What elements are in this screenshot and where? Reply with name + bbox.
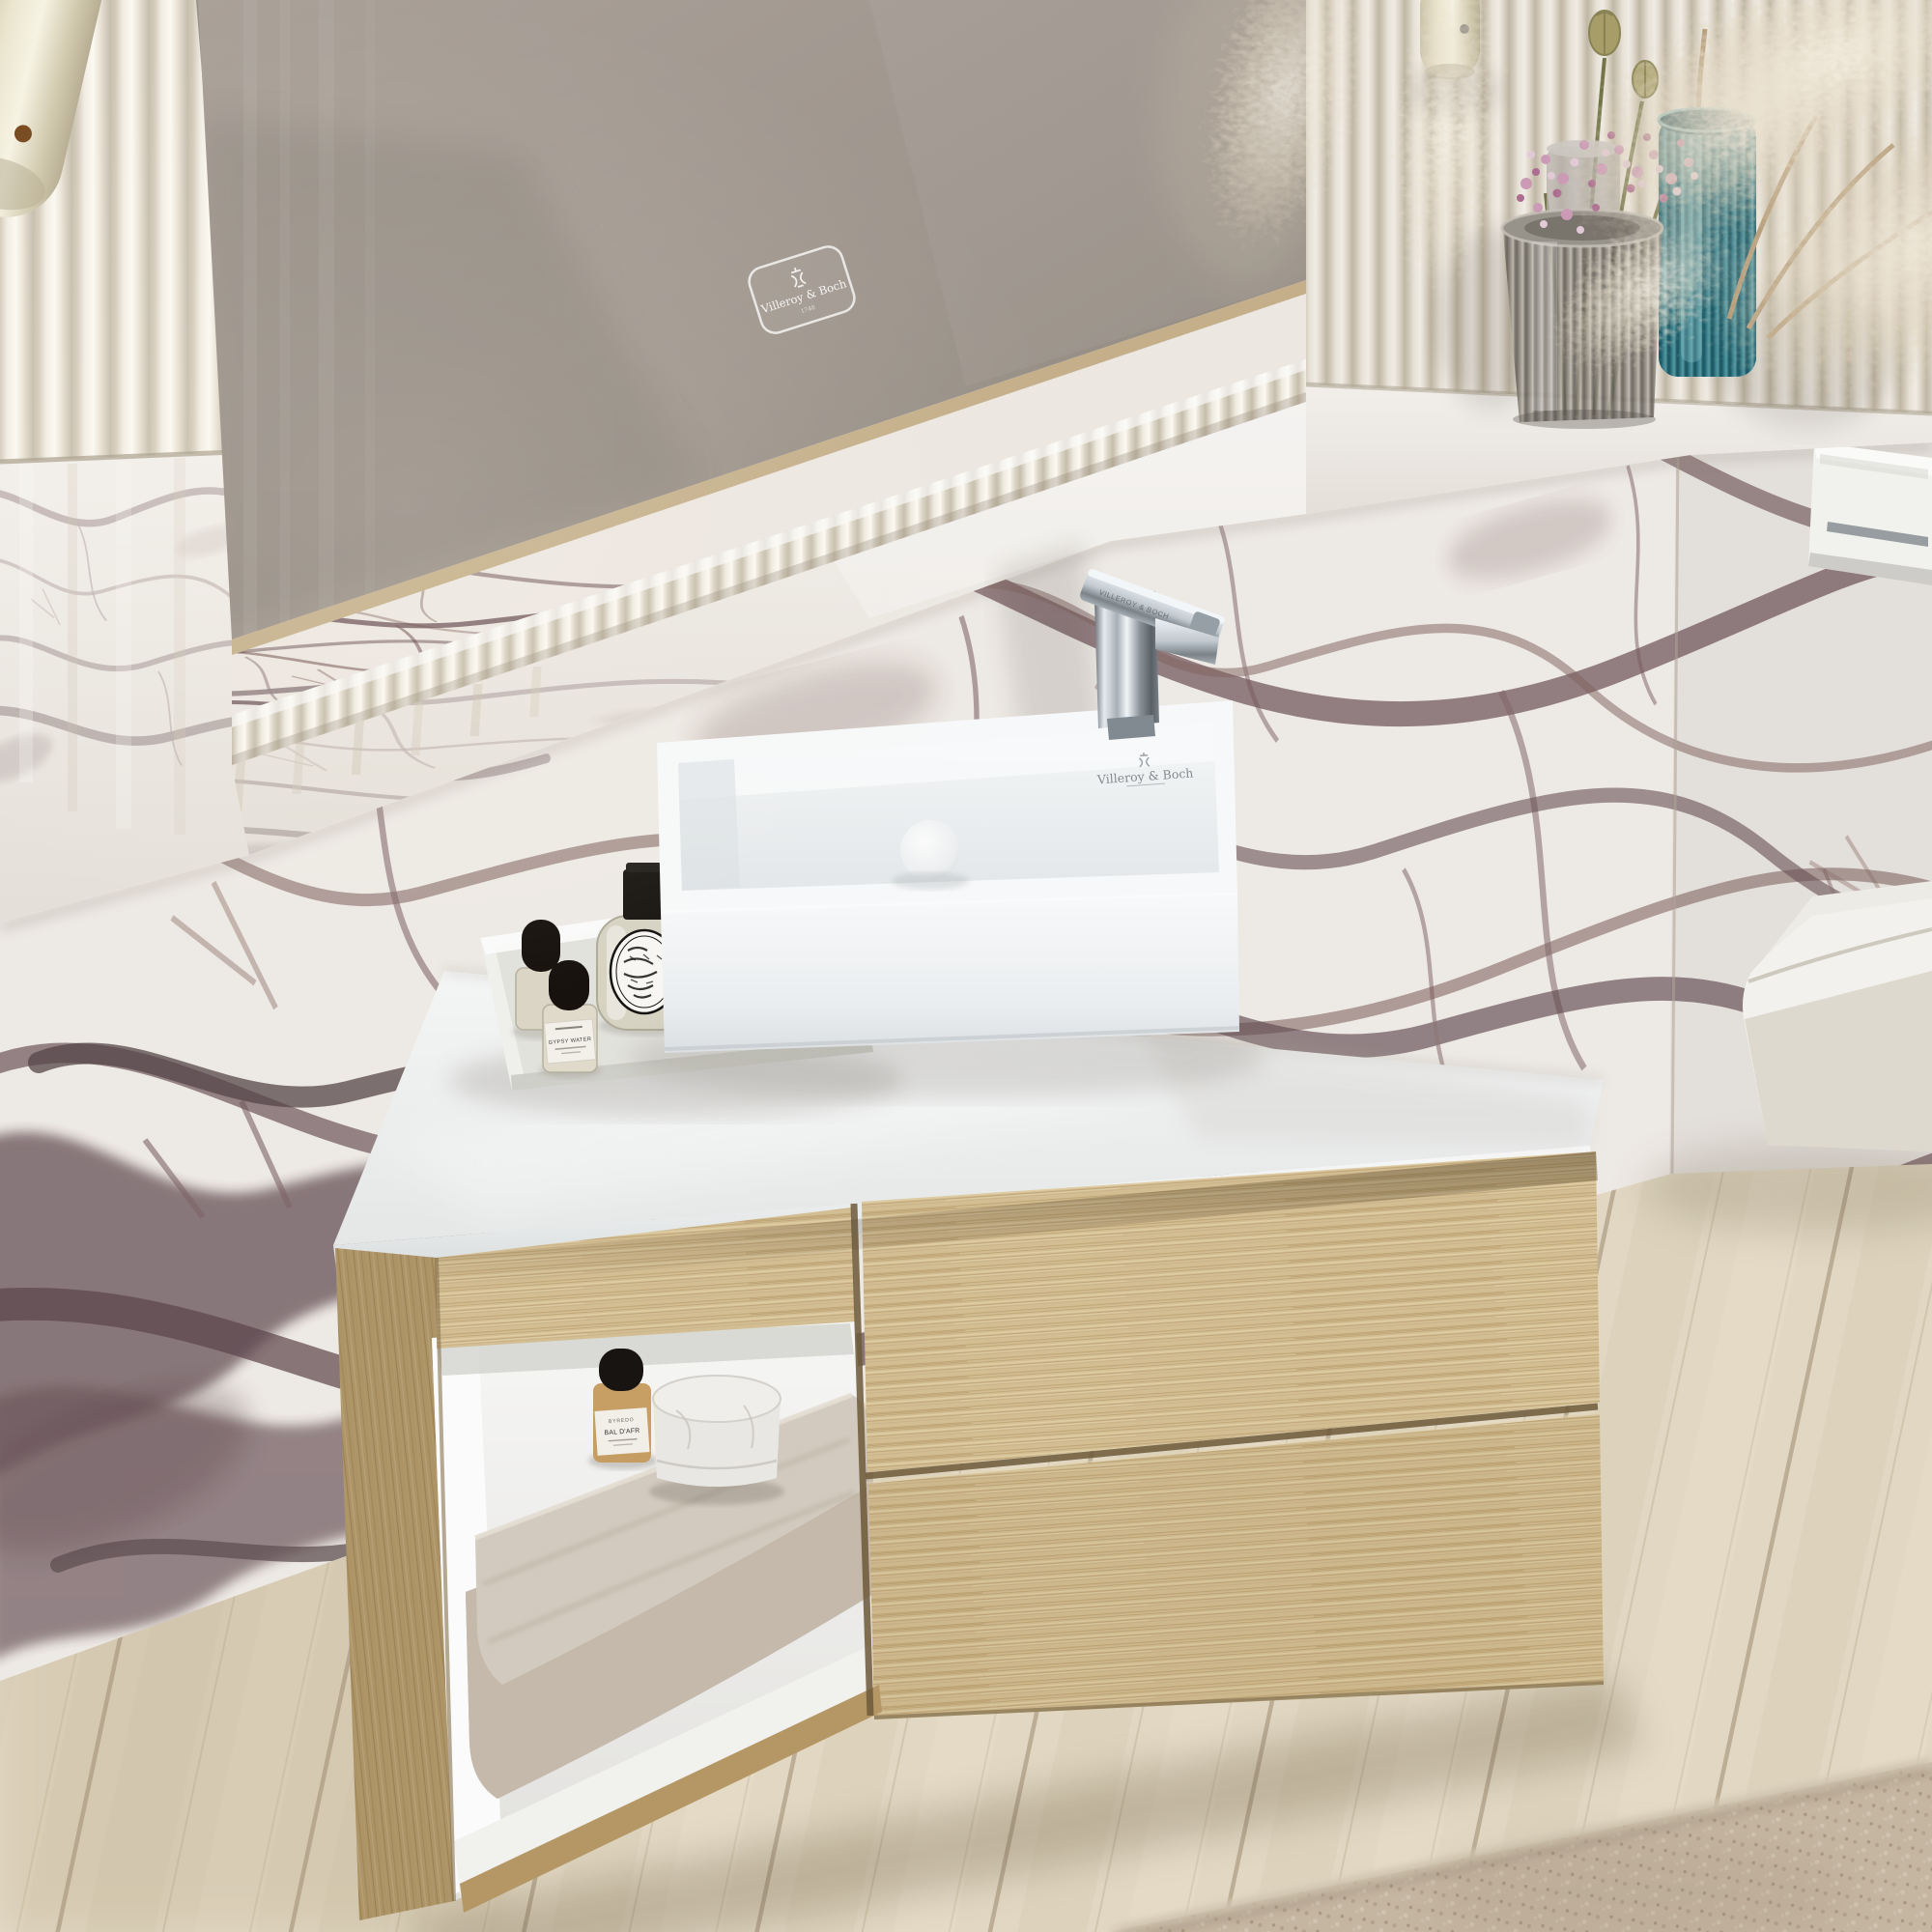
bathroom-photo: Villeroy & Boch 1748 xyxy=(0,0,1932,1932)
vignette xyxy=(0,0,1932,1932)
bathroom-scene: Villeroy & Boch 1748 xyxy=(0,0,1932,1932)
